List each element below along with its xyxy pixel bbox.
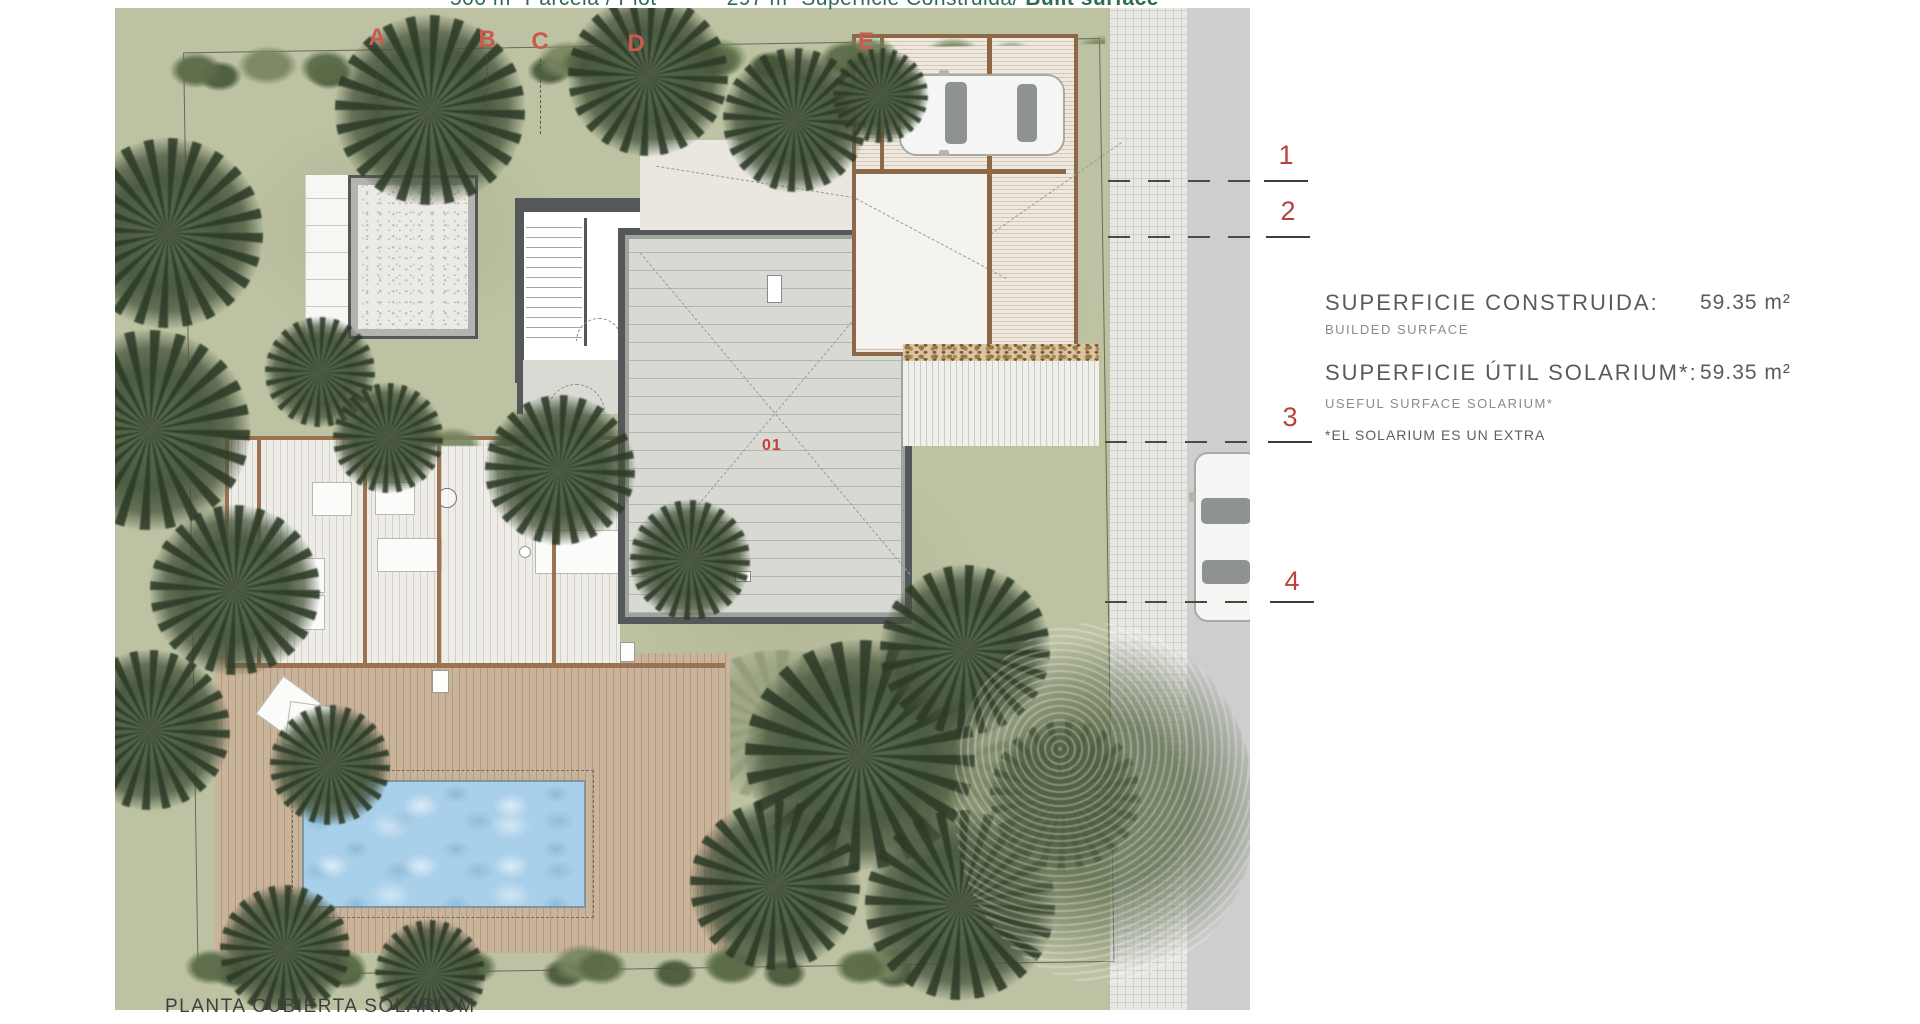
grid-number-4-leader xyxy=(1105,601,1260,603)
grid-letter-d: D xyxy=(627,30,644,58)
header-built-text: 297 m² Superficie Construida/ xyxy=(727,0,1019,10)
tree-canopy xyxy=(955,623,1250,983)
grid-letter-c: C xyxy=(531,28,548,56)
palm-tree xyxy=(630,500,750,620)
grid-line-d xyxy=(636,61,637,133)
roof-vent xyxy=(767,275,782,303)
car-mirror xyxy=(939,150,949,156)
grid-line-b xyxy=(487,57,488,132)
car-rear-window xyxy=(1017,84,1037,142)
car-rear-window xyxy=(1202,560,1250,584)
pergola-beam xyxy=(437,436,441,666)
grid-number-1: 1 xyxy=(1278,140,1293,171)
pergola-beam xyxy=(225,663,725,668)
palm-tree xyxy=(220,885,350,1010)
plan-caption: PLANTA CUBIERTA SOLÁRIUM xyxy=(165,996,476,1018)
solarium-surface-value: 59.35 m² xyxy=(1700,361,1791,385)
grid-number-1-leader xyxy=(1108,180,1256,182)
driveway xyxy=(903,361,1099,446)
built-surface-value: 59.35 m² xyxy=(1700,291,1791,315)
grid-line-e xyxy=(866,58,867,98)
sofa xyxy=(312,482,352,516)
stone-strip xyxy=(903,344,1099,361)
palm-tree xyxy=(333,383,443,493)
grid-number-1-line xyxy=(1264,180,1308,182)
grid-letter-a: A xyxy=(368,24,385,52)
header-plot-text: 500 m² Parcela / Plot xyxy=(450,0,657,10)
car-mirror xyxy=(1189,492,1195,502)
built-surface-label: SUPERFICIE CONSTRUIDA: xyxy=(1325,290,1659,316)
grid-line-c xyxy=(540,59,541,134)
grid-number-4: 4 xyxy=(1284,566,1299,597)
palm-tree xyxy=(833,48,928,143)
palm-tree xyxy=(150,505,320,675)
site-plan: 01 xyxy=(115,8,1250,1010)
solarium-surface-sublabel: USEFUL SURFACE SOLARIUM* xyxy=(1325,396,1553,411)
car-windshield xyxy=(1201,498,1250,524)
daybed xyxy=(377,538,442,572)
palm-tree xyxy=(690,800,860,970)
door-swing-arc xyxy=(576,318,622,341)
palm-tree xyxy=(270,705,390,825)
stair-treads xyxy=(526,218,582,346)
top-right-hedge xyxy=(855,14,1105,48)
grid-number-2-leader xyxy=(1108,236,1258,238)
grid-letter-b: B xyxy=(478,26,495,54)
page: 01 xyxy=(0,0,1920,1024)
palm-tree xyxy=(335,15,525,205)
grid-number-2-line xyxy=(1266,236,1310,238)
pergola-post xyxy=(620,642,635,662)
room-number-label: 01 xyxy=(762,437,782,455)
grid-number-3-leader xyxy=(1105,441,1260,443)
header-built-bold-text: Built surface xyxy=(1025,0,1159,10)
grid-number-3: 3 xyxy=(1282,402,1297,433)
chair xyxy=(519,546,531,558)
grid-number-2: 2 xyxy=(1280,196,1295,227)
grid-number-3-line xyxy=(1268,441,1312,443)
car-windshield xyxy=(945,82,967,144)
built-surface-sublabel: BUILDED SURFACE xyxy=(1325,322,1469,337)
pergola-post xyxy=(432,670,449,693)
grid-number-4-line xyxy=(1270,601,1314,603)
solarium-surface-label: SUPERFICIE ÚTIL SOLARIUM*: xyxy=(1325,360,1698,386)
grid-line-a xyxy=(377,55,378,125)
header-strip: 500 m² Parcela / Plot297 m² Superficie C… xyxy=(450,0,1159,11)
palm-tree xyxy=(485,395,635,545)
street-car xyxy=(1194,452,1250,622)
slab-path xyxy=(305,175,349,333)
solarium-footnote: *EL SOLARIUM ES UN EXTRA xyxy=(1325,427,1545,443)
grid-letter-e: E xyxy=(858,28,874,56)
car-mirror xyxy=(939,70,949,76)
carport-beam xyxy=(856,169,1066,174)
